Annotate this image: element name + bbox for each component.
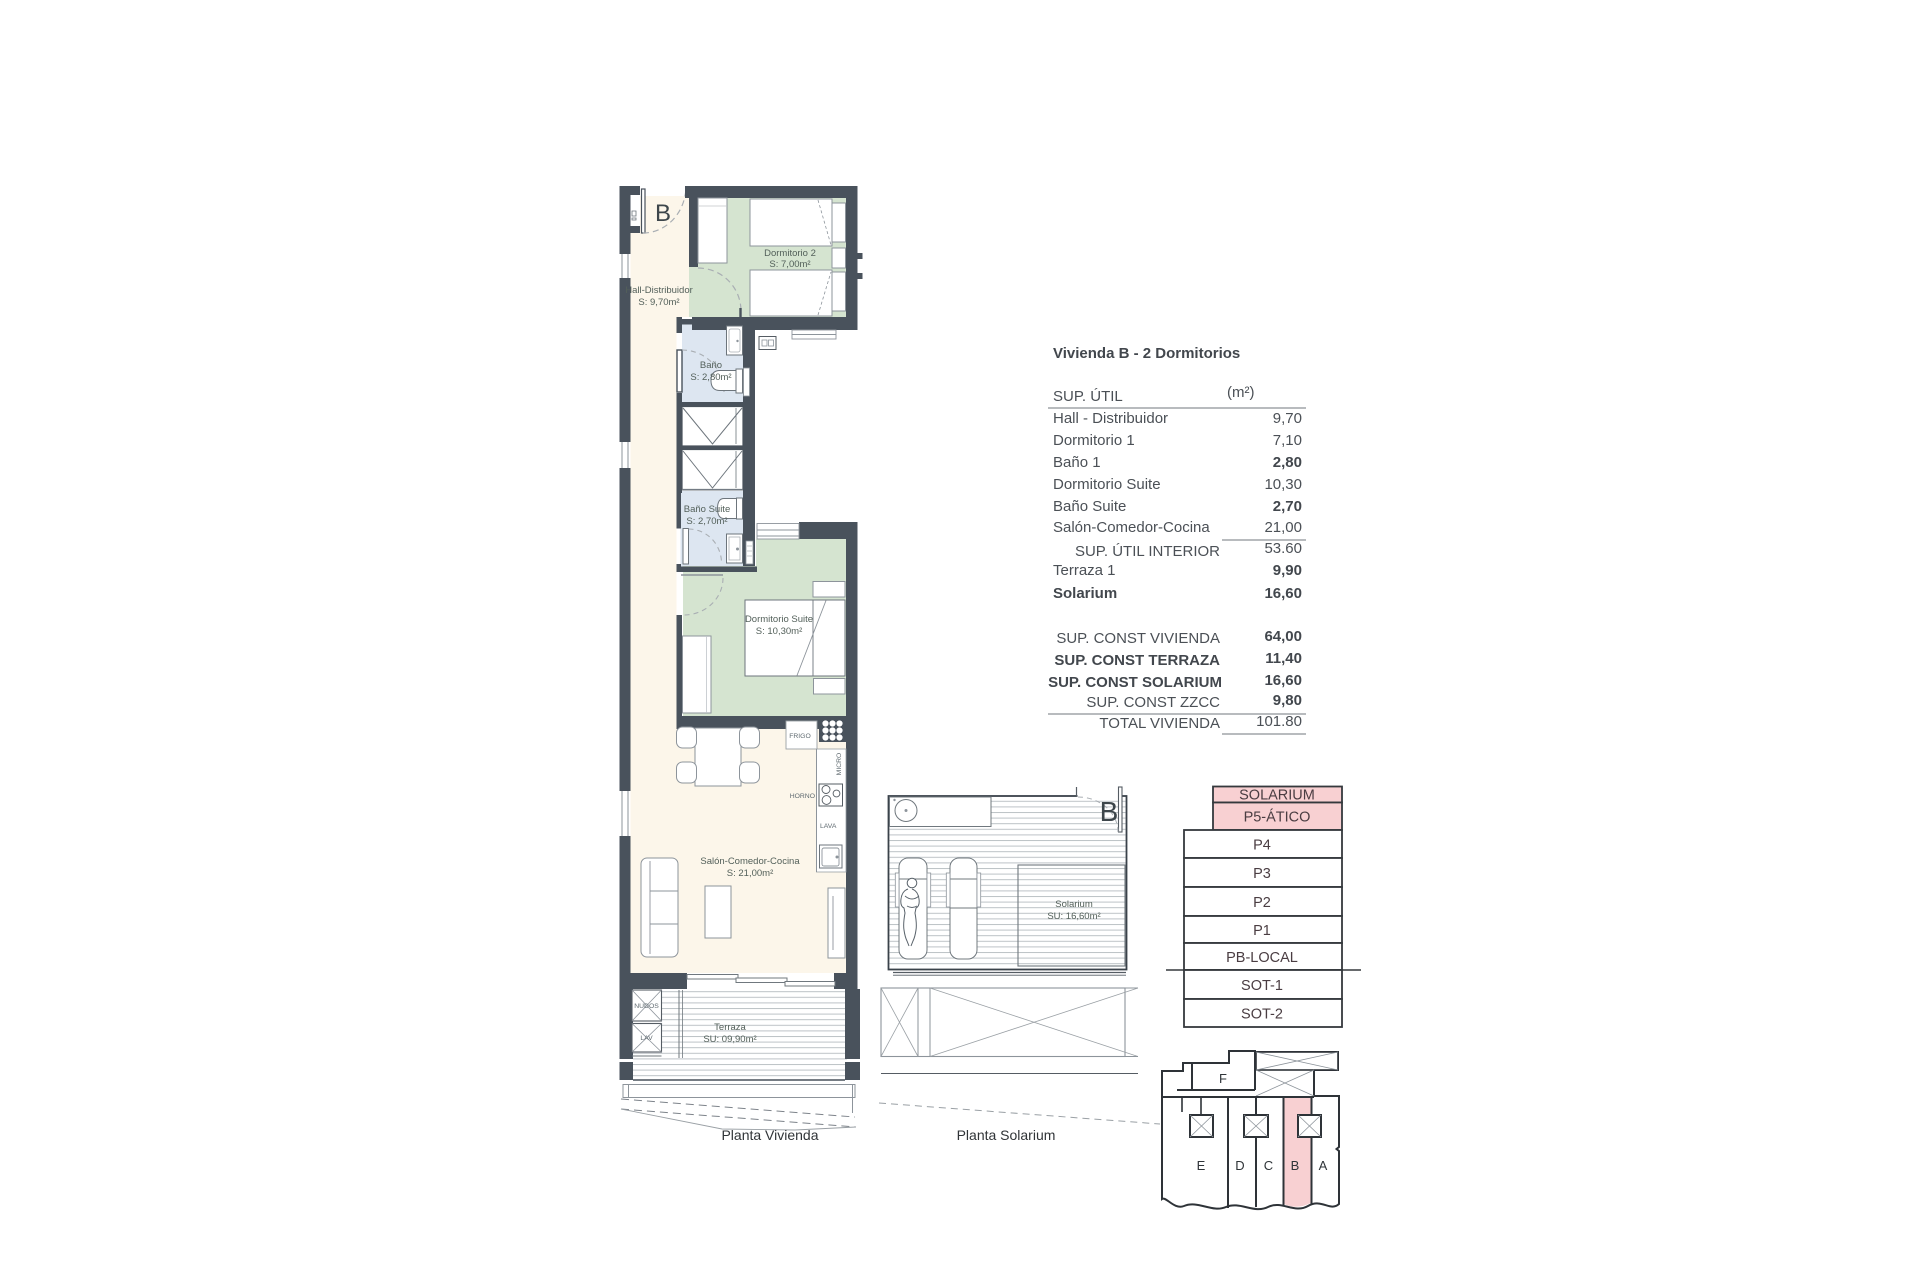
- svg-text:11,40: 11,40: [1265, 650, 1302, 667]
- svg-text:101.80: 101.80: [1256, 713, 1302, 730]
- svg-text:F: F: [1219, 1071, 1227, 1086]
- svg-text:S: 10,30m²: S: 10,30m²: [756, 626, 802, 637]
- svg-text:P1: P1: [1253, 923, 1271, 939]
- svg-text:E: E: [1197, 1158, 1206, 1173]
- svg-text:SUP. CONST ZZCC: SUP. CONST ZZCC: [1086, 694, 1220, 711]
- svg-text:9,70: 9,70: [1273, 410, 1302, 427]
- svg-text:MICRO: MICRO: [836, 753, 843, 776]
- svg-text:SOT-2: SOT-2: [1241, 1007, 1283, 1023]
- svg-text:Hall - Distribuidor: Hall - Distribuidor: [1053, 410, 1168, 427]
- svg-text:P5-ÁTICO: P5-ÁTICO: [1244, 809, 1311, 826]
- svg-text:Terraza: Terraza: [714, 1022, 746, 1033]
- svg-text:21,00: 21,00: [1264, 519, 1302, 536]
- svg-text:Dormitorio Suite: Dormitorio Suite: [745, 614, 813, 625]
- svg-text:SU: 16,60m²: SU: 16,60m²: [1047, 911, 1100, 922]
- svg-text:B: B: [655, 200, 671, 227]
- svg-text:Solarium: Solarium: [1055, 899, 1093, 910]
- svg-text:Baño: Baño: [700, 360, 722, 371]
- svg-text:Dormitorio 2: Dormitorio 2: [764, 248, 816, 259]
- svg-text:Dormitorio 1: Dormitorio 1: [1053, 432, 1135, 449]
- svg-text:LAV: LAV: [640, 1035, 653, 1042]
- svg-text:9,90: 9,90: [1273, 562, 1302, 579]
- svg-text:Solarium: Solarium: [1053, 585, 1117, 602]
- svg-text:B: B: [1100, 796, 1119, 827]
- svg-text:53.60: 53.60: [1264, 540, 1302, 557]
- svg-text:Planta Solarium: Planta Solarium: [957, 1127, 1056, 1143]
- svg-text:A: A: [1319, 1158, 1328, 1173]
- svg-text:2,70: 2,70: [1273, 498, 1302, 515]
- svg-text:SUP. ÚTIL: SUP. ÚTIL: [1053, 388, 1123, 405]
- svg-text:PB-LOCAL: PB-LOCAL: [1226, 950, 1298, 966]
- svg-text:TOTAL VIVIENDA: TOTAL VIVIENDA: [1099, 715, 1220, 732]
- svg-text:16,60: 16,60: [1264, 585, 1302, 602]
- svg-text:SOLARIUM: SOLARIUM: [1239, 788, 1315, 804]
- svg-text:Hall-Distribuidor: Hall-Distribuidor: [625, 285, 693, 296]
- svg-text:Planta Vivienda: Planta Vivienda: [721, 1127, 818, 1143]
- svg-text:(m²): (m²): [1227, 384, 1254, 401]
- svg-text:HORNO: HORNO: [790, 793, 815, 800]
- svg-text:Baño Suite: Baño Suite: [684, 504, 730, 515]
- svg-text:NUDOS: NUDOS: [634, 1003, 659, 1010]
- svg-text:SUP. ÚTIL INTERIOR: SUP. ÚTIL INTERIOR: [1075, 543, 1220, 560]
- svg-text:LAVA: LAVA: [820, 823, 837, 830]
- svg-text:7,10: 7,10: [1273, 432, 1302, 449]
- svg-text:9,80: 9,80: [1273, 692, 1302, 709]
- svg-text:S: 21,00m²: S: 21,00m²: [727, 868, 773, 879]
- svg-text:P4: P4: [1253, 838, 1271, 854]
- svg-text:C: C: [1264, 1158, 1273, 1173]
- svg-text:B: B: [1291, 1158, 1300, 1173]
- svg-text:Baño Suite: Baño Suite: [1053, 498, 1126, 515]
- svg-text:Salón-Comedor-Cocina: Salón-Comedor-Cocina: [1053, 519, 1210, 536]
- svg-text:Dormitorio Suite: Dormitorio Suite: [1053, 476, 1161, 493]
- svg-text:Vivienda B - 2 Dormitorios: Vivienda B - 2 Dormitorios: [1053, 345, 1240, 362]
- svg-text:SU: 09,90m²: SU: 09,90m²: [703, 1034, 756, 1045]
- svg-text:FRIGO: FRIGO: [789, 733, 811, 740]
- svg-text:SOT-1: SOT-1: [1241, 978, 1283, 994]
- svg-text:SUP. CONST TERRAZA: SUP. CONST TERRAZA: [1054, 652, 1220, 669]
- svg-text:D: D: [1235, 1158, 1244, 1173]
- svg-text:S: 7,00m²: S: 7,00m²: [769, 259, 810, 270]
- svg-text:S: 2,80m²: S: 2,80m²: [690, 372, 731, 383]
- svg-text:64,00: 64,00: [1264, 628, 1302, 645]
- svg-text:Salón-Comedor-Cocina: Salón-Comedor-Cocina: [700, 856, 800, 867]
- svg-text:P2: P2: [1253, 895, 1271, 911]
- svg-text:S: 9,70m²: S: 9,70m²: [638, 297, 679, 308]
- svg-text:P3: P3: [1253, 866, 1271, 882]
- svg-text:Baño 1: Baño 1: [1053, 454, 1101, 471]
- svg-text:Terraza 1: Terraza 1: [1053, 562, 1116, 579]
- svg-text:16,60: 16,60: [1264, 672, 1302, 689]
- svg-text:S: 2,70m²: S: 2,70m²: [686, 516, 727, 527]
- svg-text:10,30: 10,30: [1264, 476, 1302, 493]
- svg-text:SUP. CONST VIVIENDA: SUP. CONST VIVIENDA: [1056, 630, 1220, 647]
- svg-text:SUP. CONST SOLARIUM: SUP. CONST SOLARIUM: [1048, 674, 1222, 691]
- svg-text:2,80: 2,80: [1273, 454, 1302, 471]
